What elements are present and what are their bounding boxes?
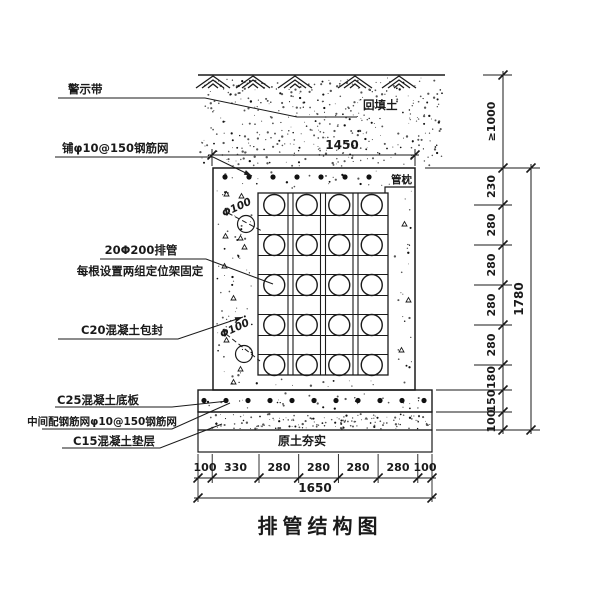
dim-bottom-seg: 280 — [387, 461, 410, 474]
slab-mesh-label: 中间配钢筋网φ10@150钢筋网 — [27, 415, 177, 428]
compacted-soil-label: 原土夯实 — [278, 433, 326, 448]
dim-top-width-value: 1450 — [325, 138, 358, 152]
backfill-label: 回填土 — [363, 98, 398, 112]
cushion-label: C15混凝土垫层 — [73, 434, 155, 448]
concrete-speckle-texture — [199, 78, 443, 430]
dim-right-seg: 150 — [485, 389, 498, 412]
dim-bottom-chain: 100 330 280 280 280 280 100 1650 — [194, 461, 437, 498]
left-annotations: 警示带 铺φ10@150钢筋网 20Φ200排管 每根设置两组定位架固定 C20… — [27, 82, 357, 448]
dim-bottom-seg: 100 — [194, 461, 217, 474]
dim-right-total: 1780 — [512, 282, 526, 315]
drawing-canvas: 原土夯实 回填土 管枕 Φ100 Φ100 警示带 铺φ10@150钢筋网 20… — [0, 0, 600, 600]
dim-right-seg: 280 — [485, 213, 498, 236]
pipe-circles — [264, 195, 383, 376]
dim-right-seg: 280 — [485, 293, 498, 316]
dim-right-seg: 230 — [485, 175, 498, 198]
drawing-title: 排管结构图 — [258, 514, 383, 538]
ground-hatch-marks — [196, 76, 416, 88]
dim-right-seg: 180 — [485, 366, 498, 389]
dim-bottom-seg: 280 — [347, 461, 370, 474]
dim-bottom-total: 1650 — [298, 481, 331, 495]
pipe-diameter-callout-1: Φ100 — [220, 196, 262, 233]
dim-bottom-seg: 280 — [268, 461, 291, 474]
pipe-pillow-step — [385, 187, 415, 193]
dim-bottom-seg: 100 — [414, 461, 437, 474]
duct-bank-drawing: 原土夯实 回填土 管枕 Φ100 Φ100 警示带 铺φ10@150钢筋网 20… — [0, 0, 600, 600]
dim-cover-depth: ≥1000 — [485, 101, 498, 141]
dim-bottom-seg: 280 — [307, 461, 330, 474]
warning-tape-label: 警示带 — [67, 82, 103, 96]
dim-bottom-seg: 330 — [224, 461, 247, 474]
dim-right-seg: 100 — [485, 409, 498, 432]
encasement-label: C20混凝土包封 — [81, 323, 163, 337]
top-rebar-dots — [222, 174, 371, 179]
pipes-label-line1: 20Φ200排管 — [105, 243, 178, 257]
dim-right-chain: ≥1000 230 280 280 280 280 180 150 100 17… — [485, 71, 531, 434]
slab-rebar-dots — [201, 398, 426, 403]
pipe-diameter-text: Φ100 — [218, 317, 251, 341]
pipe-pillow-label: 管枕 — [391, 173, 412, 186]
dim-right-seg: 280 — [485, 253, 498, 276]
top-mesh-label: 铺φ10@150钢筋网 — [62, 141, 169, 155]
dim-right-seg: 280 — [485, 333, 498, 356]
base-slab-label: C25混凝土底板 — [57, 393, 139, 407]
dim-top-width: 1450 — [208, 138, 419, 166]
pipe-grid — [258, 187, 415, 376]
pipes-label-line2: 每根设置两组定位架固定 — [77, 264, 204, 278]
